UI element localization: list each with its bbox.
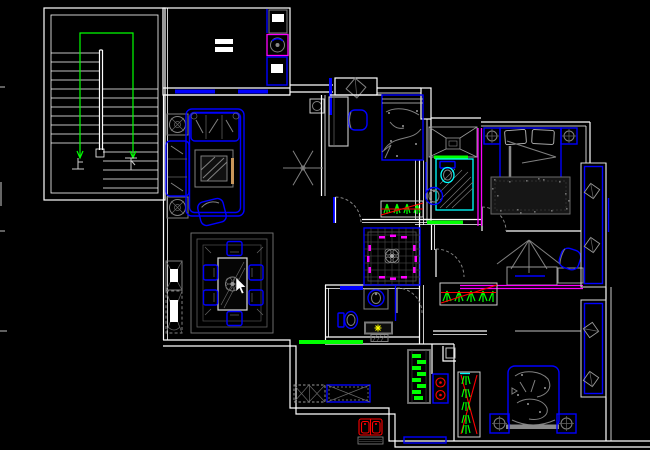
bedroom-rug	[491, 177, 570, 214]
stair-up-label	[72, 158, 84, 169]
bay-window-1	[581, 163, 606, 287]
floorplan-canvas[interactable]	[0, 0, 650, 450]
threshold	[299, 340, 363, 344]
stair-treads-right	[103, 89, 158, 188]
edge-ticks	[0, 87, 7, 331]
single-bed	[508, 366, 559, 427]
washing-machine	[267, 35, 288, 56]
nightstand-right	[561, 128, 577, 144]
toilet	[440, 162, 455, 183]
single-bed	[382, 95, 423, 160]
vanity-light	[365, 323, 392, 334]
corner-plant-bottom	[167, 197, 188, 218]
planter-strip	[458, 372, 480, 437]
cabinet-bottom	[267, 57, 287, 85]
master-bedroom	[484, 128, 577, 214]
laundry-room	[175, 9, 288, 94]
threshold	[427, 221, 463, 225]
vanity-counter	[429, 127, 477, 157]
stair-down-label	[125, 158, 137, 170]
washbasin	[364, 289, 388, 309]
pendant-lamp-icon	[283, 151, 323, 186]
toilet	[338, 312, 358, 329]
nightstand-left	[484, 128, 500, 144]
study-planter	[440, 283, 497, 305]
gas-stove	[433, 374, 448, 403]
bay-window-2	[581, 300, 606, 397]
study	[440, 240, 583, 305]
base-cabinet-2	[327, 385, 370, 402]
corner-plant-top	[167, 114, 188, 135]
bathroom	[299, 289, 392, 344]
cad-viewport[interactable]	[0, 0, 650, 450]
living-room	[166, 109, 323, 227]
nightstand-left	[490, 414, 509, 433]
stair-divider	[96, 50, 104, 157]
console-cabinet-2	[166, 291, 182, 333]
console-cabinet	[166, 261, 182, 290]
tall-cabinet	[408, 350, 430, 403]
headboard	[506, 425, 559, 430]
stair-handrail	[77, 33, 136, 158]
planter	[381, 201, 423, 217]
coffee-table	[195, 150, 234, 187]
base-cabinet-1	[294, 385, 325, 402]
bay-windows	[581, 163, 606, 397]
window-ledge	[404, 437, 446, 443]
dining-room	[166, 233, 273, 333]
wall-lamp-icon	[497, 240, 560, 273]
bedroom-3	[458, 366, 576, 437]
drainboard	[358, 437, 383, 444]
foyer-tile	[364, 228, 420, 285]
stairwell	[44, 8, 165, 200]
window-marker	[238, 90, 268, 94]
ensuite-bathroom	[426, 127, 482, 226]
floor-mat	[371, 335, 388, 342]
nightstand-right	[557, 414, 576, 433]
partition-line	[460, 286, 583, 289]
study-desk	[507, 267, 557, 285]
double-sink	[359, 419, 382, 435]
sofa-three-seat	[191, 113, 239, 141]
kitchen	[294, 350, 448, 444]
counter-marks	[215, 39, 233, 52]
stair-treads-left	[51, 53, 99, 143]
washbasin	[426, 188, 443, 205]
cabinet-top	[267, 9, 287, 33]
partition-wall	[478, 128, 482, 226]
desk-chair	[349, 110, 367, 130]
window-marker	[175, 90, 215, 94]
